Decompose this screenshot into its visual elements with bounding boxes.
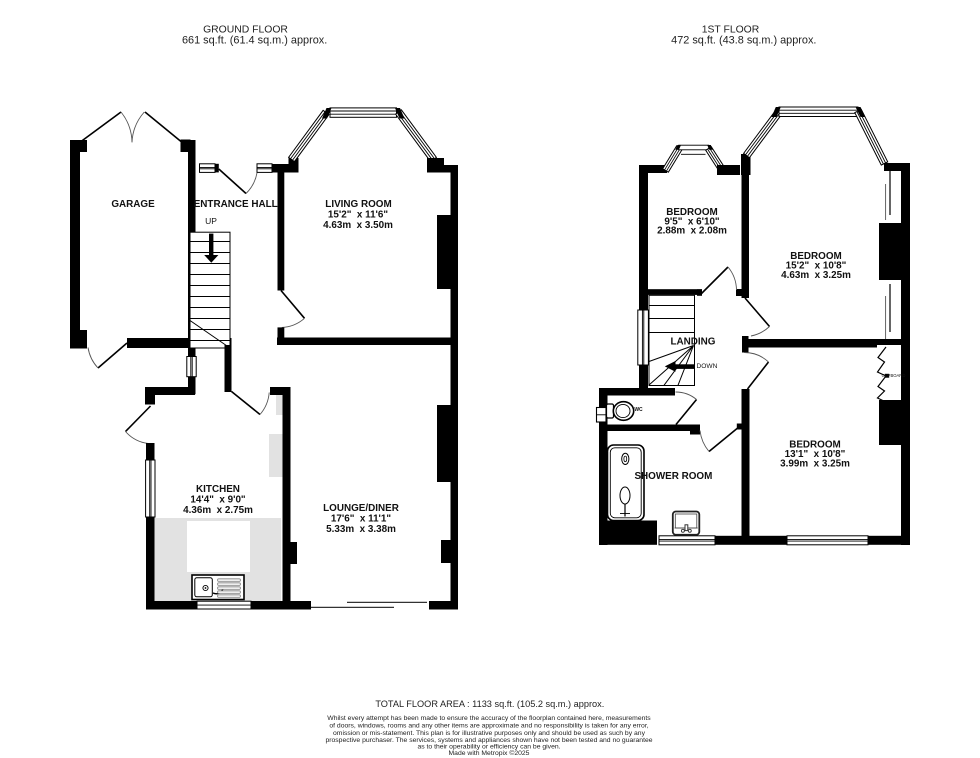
svg-text:2.88m x 2.08m: 2.88m x 2.08m <box>657 226 727 237</box>
svg-text:3.99m x 3.25m: 3.99m x 3.25m <box>780 459 850 470</box>
svg-text:4.36m x 2.75m: 4.36m x 2.75m <box>183 505 253 516</box>
svg-text:4.63m x 3.50m: 4.63m x 3.50m <box>323 220 393 231</box>
svg-text:15'2" x 11'6": 15'2" x 11'6" <box>328 210 389 221</box>
svg-text:LANDING: LANDING <box>671 337 716 348</box>
svg-text:Whilst every attempt has been: Whilst every attempt has been made to en… <box>327 715 651 722</box>
svg-text:17'6" x 11'1": 17'6" x 11'1" <box>331 514 392 525</box>
svg-text:Made with Metropix ©2025: Made with Metropix ©2025 <box>449 749 530 757</box>
svg-text:LOUNGE/DINER: LOUNGE/DINER <box>323 503 399 514</box>
svg-text:CUPBOARD: CUPBOARD <box>882 373 906 378</box>
svg-text:WC: WC <box>634 407 643 413</box>
svg-text:DOWN: DOWN <box>697 363 718 370</box>
svg-text:GARAGE: GARAGE <box>111 199 155 210</box>
svg-text:KITCHEN: KITCHEN <box>196 484 240 495</box>
svg-text:4.63m x 3.25m: 4.63m x 3.25m <box>781 270 851 281</box>
svg-text:14'4" x 9'0": 14'4" x 9'0" <box>190 495 246 506</box>
svg-text:of doors, windows, rooms and a: of doors, windows, rooms and any other i… <box>329 723 648 730</box>
svg-text:SHOWER ROOM: SHOWER ROOM <box>634 471 712 482</box>
svg-text:ENTRANCE HALL: ENTRANCE HALL <box>194 199 278 210</box>
svg-text:472 sq.ft. (43.8 sq.m.) approx: 472 sq.ft. (43.8 sq.m.) approx. <box>671 35 816 47</box>
svg-text:UP: UP <box>205 216 217 226</box>
svg-text:661 sq.ft. (61.4 sq.m.) approx: 661 sq.ft. (61.4 sq.m.) approx. <box>182 35 327 47</box>
svg-text:TOTAL FLOOR AREA : 1133 sq.ft.: TOTAL FLOOR AREA : 1133 sq.ft. (105.2 sq… <box>375 699 604 709</box>
svg-text:5.33m x 3.38m: 5.33m x 3.38m <box>326 524 396 535</box>
svg-text:omission or mis-statement. Thi: omission or mis-statement. This plan is … <box>333 730 646 737</box>
svg-text:LIVING ROOM: LIVING ROOM <box>325 199 391 210</box>
